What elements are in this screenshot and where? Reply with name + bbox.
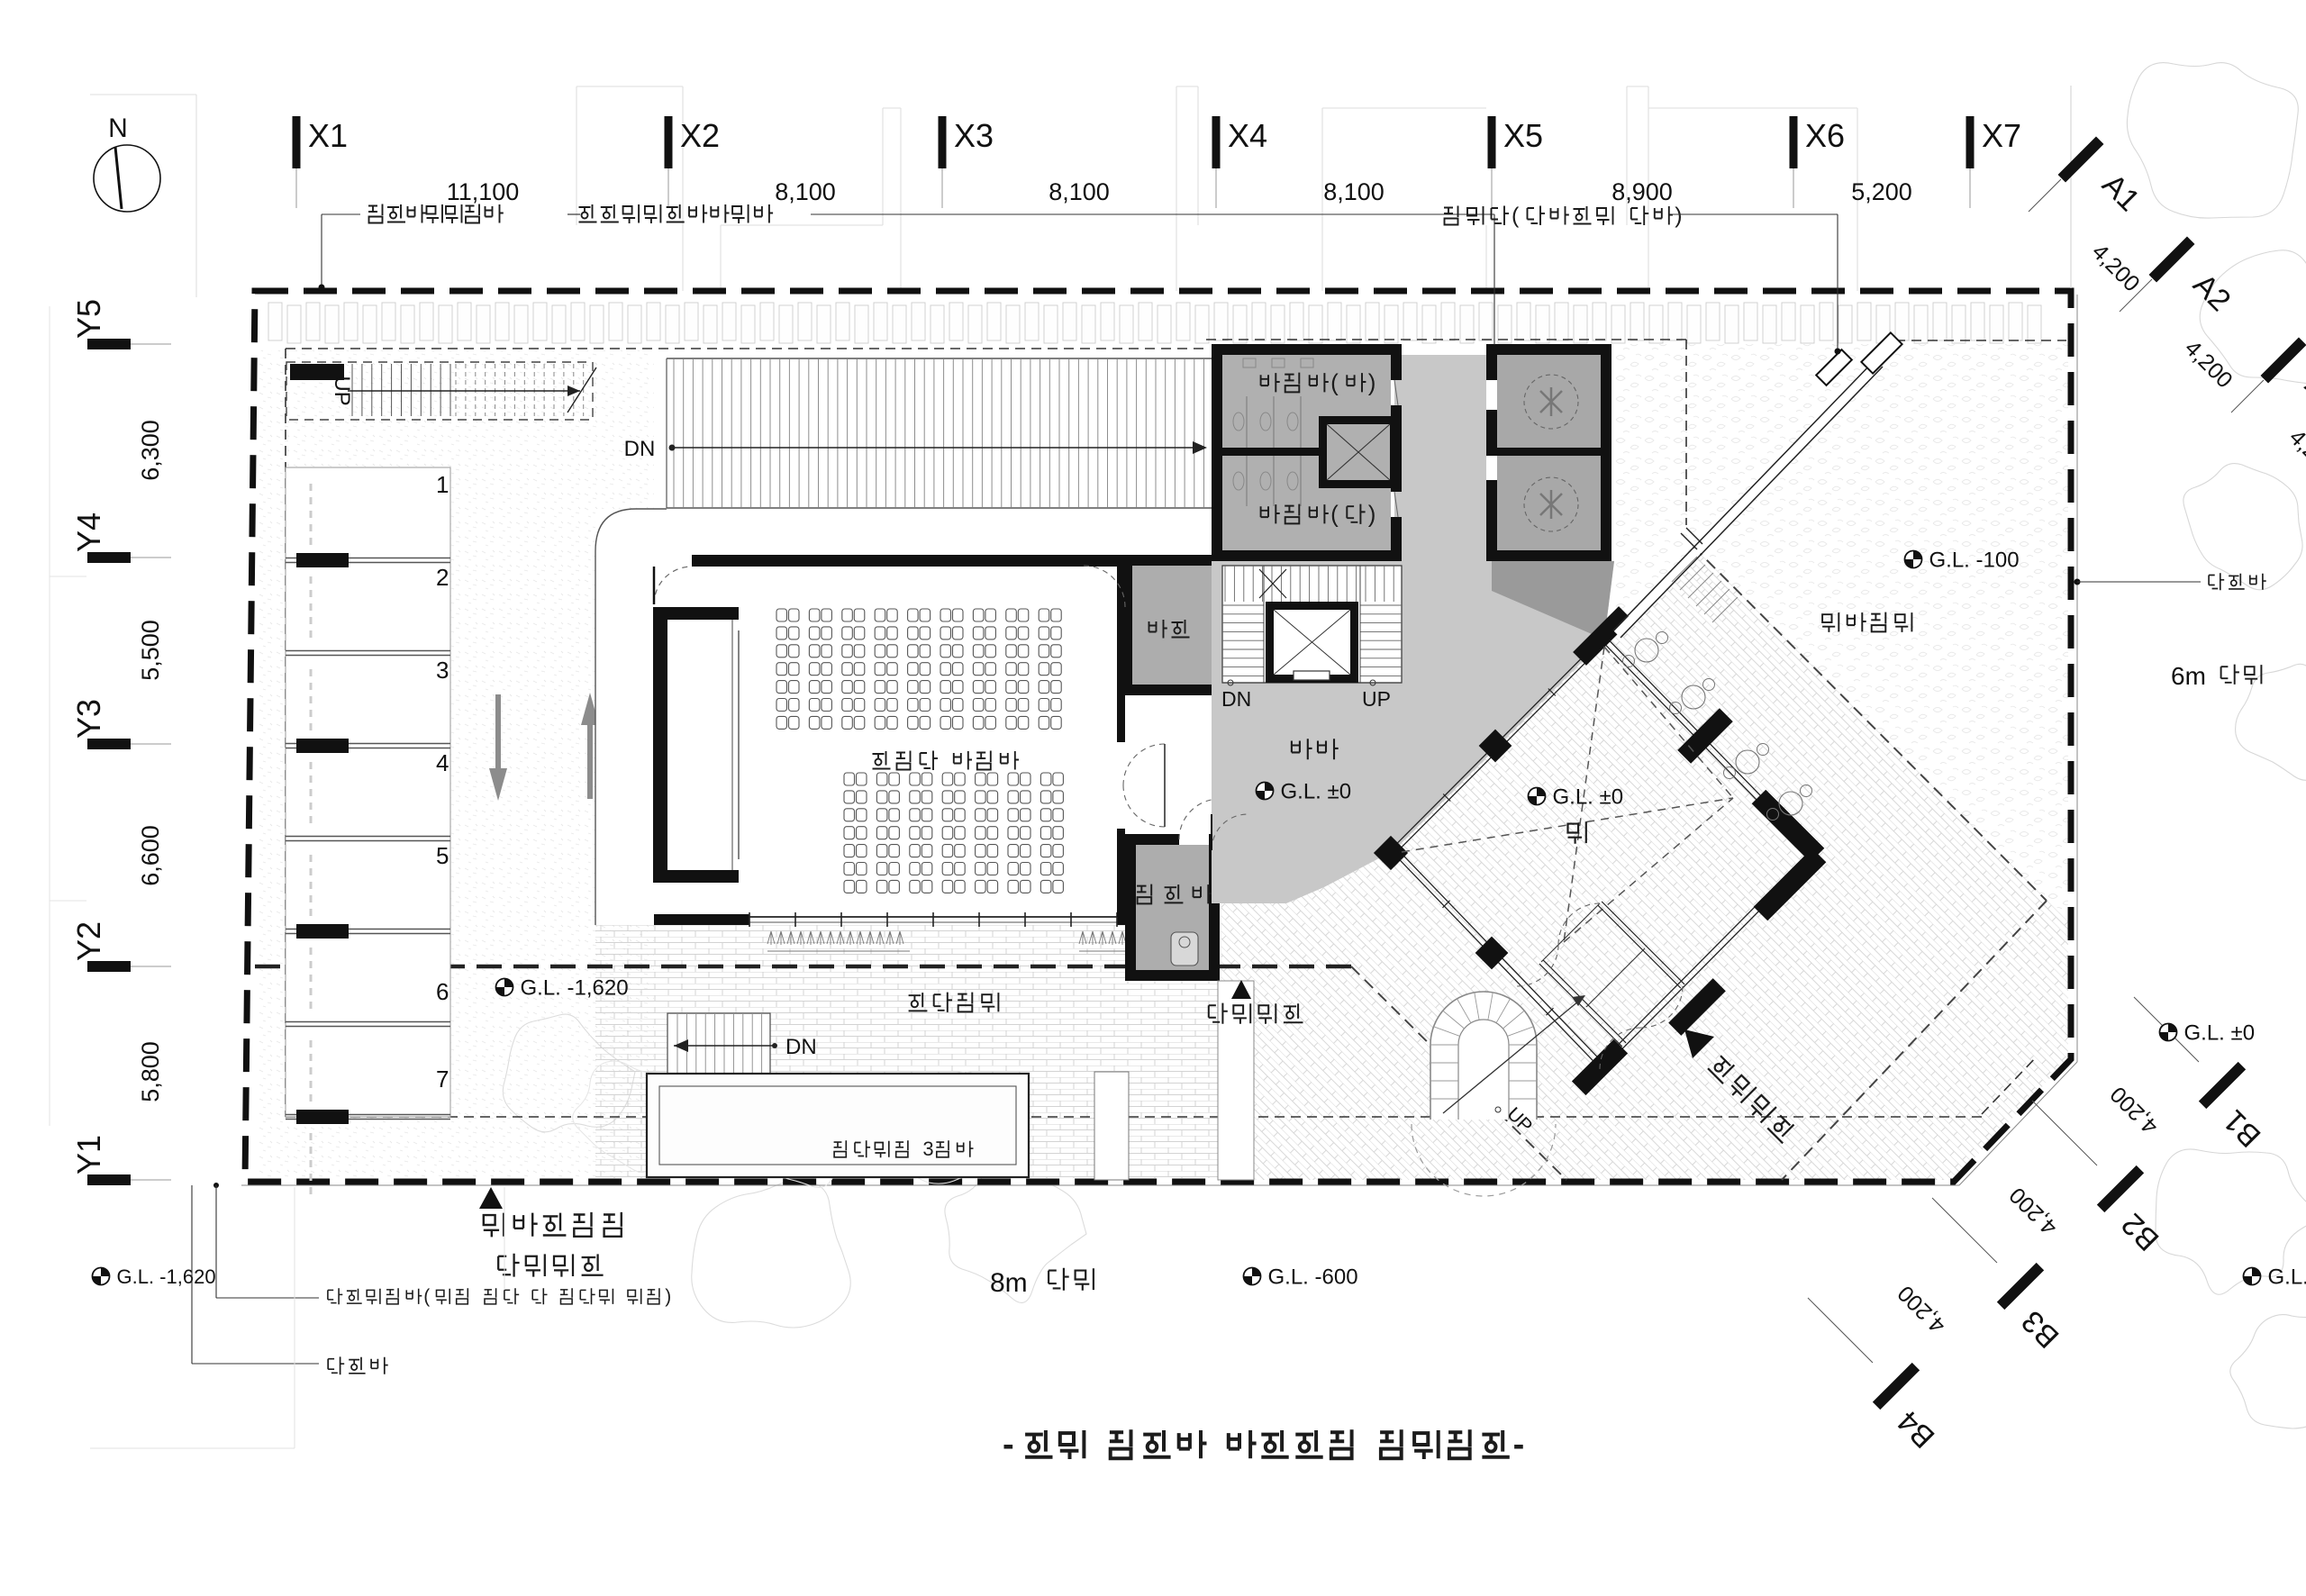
svg-text:G.L. ±0: G.L. ±0 bbox=[1553, 785, 1624, 810]
svg-text:G.L. -1,620: G.L. -1,620 bbox=[117, 1265, 216, 1288]
svg-text:Y1: Y1 bbox=[70, 1135, 107, 1174]
svg-text:5,500: 5,500 bbox=[137, 620, 164, 681]
svg-text:Y2: Y2 bbox=[70, 921, 107, 961]
svg-text:3: 3 bbox=[922, 1138, 933, 1160]
svg-text:X5: X5 bbox=[1503, 117, 1543, 154]
svg-text:X3: X3 bbox=[954, 117, 994, 154]
svg-text:DN: DN bbox=[1221, 687, 1251, 711]
svg-text:UP: UP bbox=[330, 376, 354, 405]
svg-text:6,300: 6,300 bbox=[137, 420, 164, 481]
svg-text:8,900: 8,900 bbox=[1611, 178, 1673, 205]
svg-text:): ) bbox=[665, 1286, 671, 1307]
svg-text:4: 4 bbox=[436, 749, 449, 776]
svg-text:N: N bbox=[108, 113, 128, 143]
svg-text:G.L. ±0: G.L. ±0 bbox=[1281, 780, 1352, 804]
svg-text:Y5: Y5 bbox=[70, 299, 107, 339]
svg-text:8,100: 8,100 bbox=[775, 178, 836, 205]
svg-text:11,100: 11,100 bbox=[447, 178, 520, 205]
svg-text:X4: X4 bbox=[1228, 117, 1267, 154]
svg-text:(: ( bbox=[1512, 204, 1520, 229]
svg-text:G.L. ±0: G.L. ±0 bbox=[2184, 1021, 2256, 1046]
svg-text:G.L. -1,620: G.L. -1,620 bbox=[521, 976, 629, 1001]
svg-text:(: ( bbox=[1330, 500, 1339, 527]
svg-text:8m: 8m bbox=[990, 1268, 1028, 1298]
svg-text:5: 5 bbox=[436, 842, 449, 869]
svg-text:X1: X1 bbox=[308, 117, 348, 154]
svg-text:DN: DN bbox=[624, 437, 656, 461]
svg-text:8,100: 8,100 bbox=[1049, 178, 1110, 205]
svg-text:X6: X6 bbox=[1805, 117, 1845, 154]
svg-text:6: 6 bbox=[436, 978, 449, 1005]
svg-text:7: 7 bbox=[436, 1066, 449, 1093]
svg-text:): ) bbox=[1675, 204, 1682, 229]
svg-text:-: - bbox=[1513, 1426, 1525, 1464]
svg-text:2: 2 bbox=[436, 564, 449, 591]
svg-text:5,200: 5,200 bbox=[1851, 178, 1912, 205]
svg-text:X7: X7 bbox=[1982, 117, 2021, 154]
svg-text:-: - bbox=[1003, 1426, 1014, 1464]
svg-text:3: 3 bbox=[436, 657, 449, 684]
svg-text:G.L. -100: G.L. -100 bbox=[1929, 549, 2020, 573]
svg-text:UP: UP bbox=[1362, 687, 1391, 711]
svg-text:): ) bbox=[1368, 368, 1376, 395]
svg-text:6,600: 6,600 bbox=[137, 825, 164, 886]
svg-text:G.L. -600: G.L. -600 bbox=[1268, 1265, 1358, 1290]
svg-text:X2: X2 bbox=[680, 117, 720, 154]
svg-text:DN: DN bbox=[785, 1035, 817, 1059]
svg-text:6m: 6m bbox=[2171, 662, 2206, 690]
svg-text:G.L. ±0: G.L. ±0 bbox=[2268, 1265, 2306, 1290]
svg-text:): ) bbox=[1368, 500, 1376, 527]
svg-text:Y4: Y4 bbox=[70, 512, 107, 552]
svg-text:5,800: 5,800 bbox=[137, 1041, 164, 1102]
svg-text:Y3: Y3 bbox=[70, 699, 107, 739]
svg-text:1: 1 bbox=[436, 471, 449, 498]
svg-text:8,100: 8,100 bbox=[1323, 178, 1385, 205]
svg-text:(: ( bbox=[1330, 368, 1339, 395]
svg-text:(: ( bbox=[423, 1286, 430, 1307]
